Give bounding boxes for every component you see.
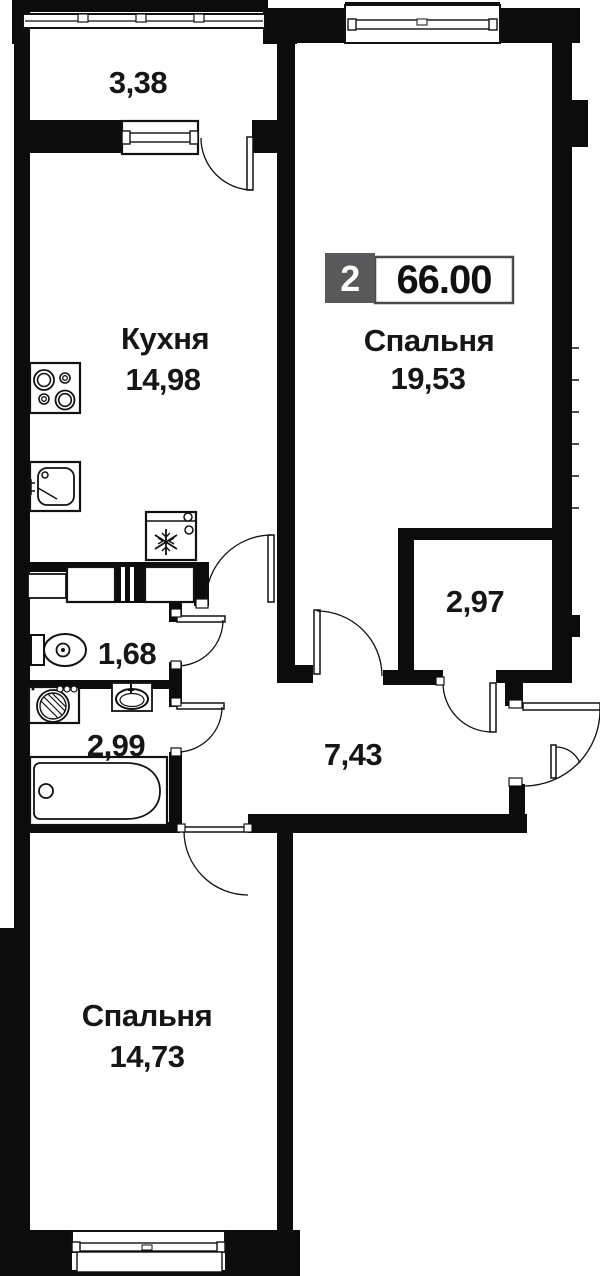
bedroom-second-window-icon [72,1231,225,1272]
kitchen-area-label: 14,98 [125,362,200,397]
washbasin-icon [112,683,152,711]
doors [171,137,600,895]
kitchen-name-label: Кухня [121,321,209,356]
bedroom-second-name-label: Спальня [82,998,212,1033]
kitchen-balcony-window-icon [122,121,198,154]
bathtub-icon [30,757,167,825]
stove-icon [30,363,80,413]
bedroom-main-name-label: Спальня [364,323,494,358]
balcony-door-icon [201,137,253,190]
bathroom-door-icon [171,698,224,756]
fridge-icon [146,512,196,560]
hallway-area-label: 7,43 [324,737,383,772]
wc-fixtures [24,634,86,666]
wall-hatch-ticks [572,348,579,508]
toilet-icon [24,634,86,666]
balcony-glazing-window-icon [23,14,265,28]
wc-area-label: 1,68 [98,636,157,671]
bathroom-area-label: 2,99 [87,728,146,763]
wardrobe-door-icon [436,677,496,732]
bedroom-second-area-label: 14,73 [109,1039,184,1074]
entrance-door-icon [509,700,600,786]
bedroom-main-door-icon [314,610,382,676]
balcony-area-label: 3,38 [109,65,168,100]
bedroom-main-window-icon [345,5,500,43]
washing-machine-icon [29,686,79,723]
kitchen-sink-icon [27,462,80,511]
bedroom-main-area-label: 19,53 [390,361,465,396]
floor-plan-page: 3,38 Кухня 14,98 Спальня 19,53 2,97 1,68… [0,0,600,1276]
floor-plan: 3,38 Кухня 14,98 Спальня 19,53 2,97 1,68… [0,0,600,1276]
apartment-badge: 2 66.00 [325,253,513,303]
walls [0,0,588,1276]
wc-door-icon [171,609,225,669]
bedroom-second-door-icon [177,824,252,895]
wardrobe-area-label: 2,97 [446,584,504,619]
badge-total-area: 66.00 [396,258,491,302]
badge-rooms-count: 2 [340,258,360,299]
